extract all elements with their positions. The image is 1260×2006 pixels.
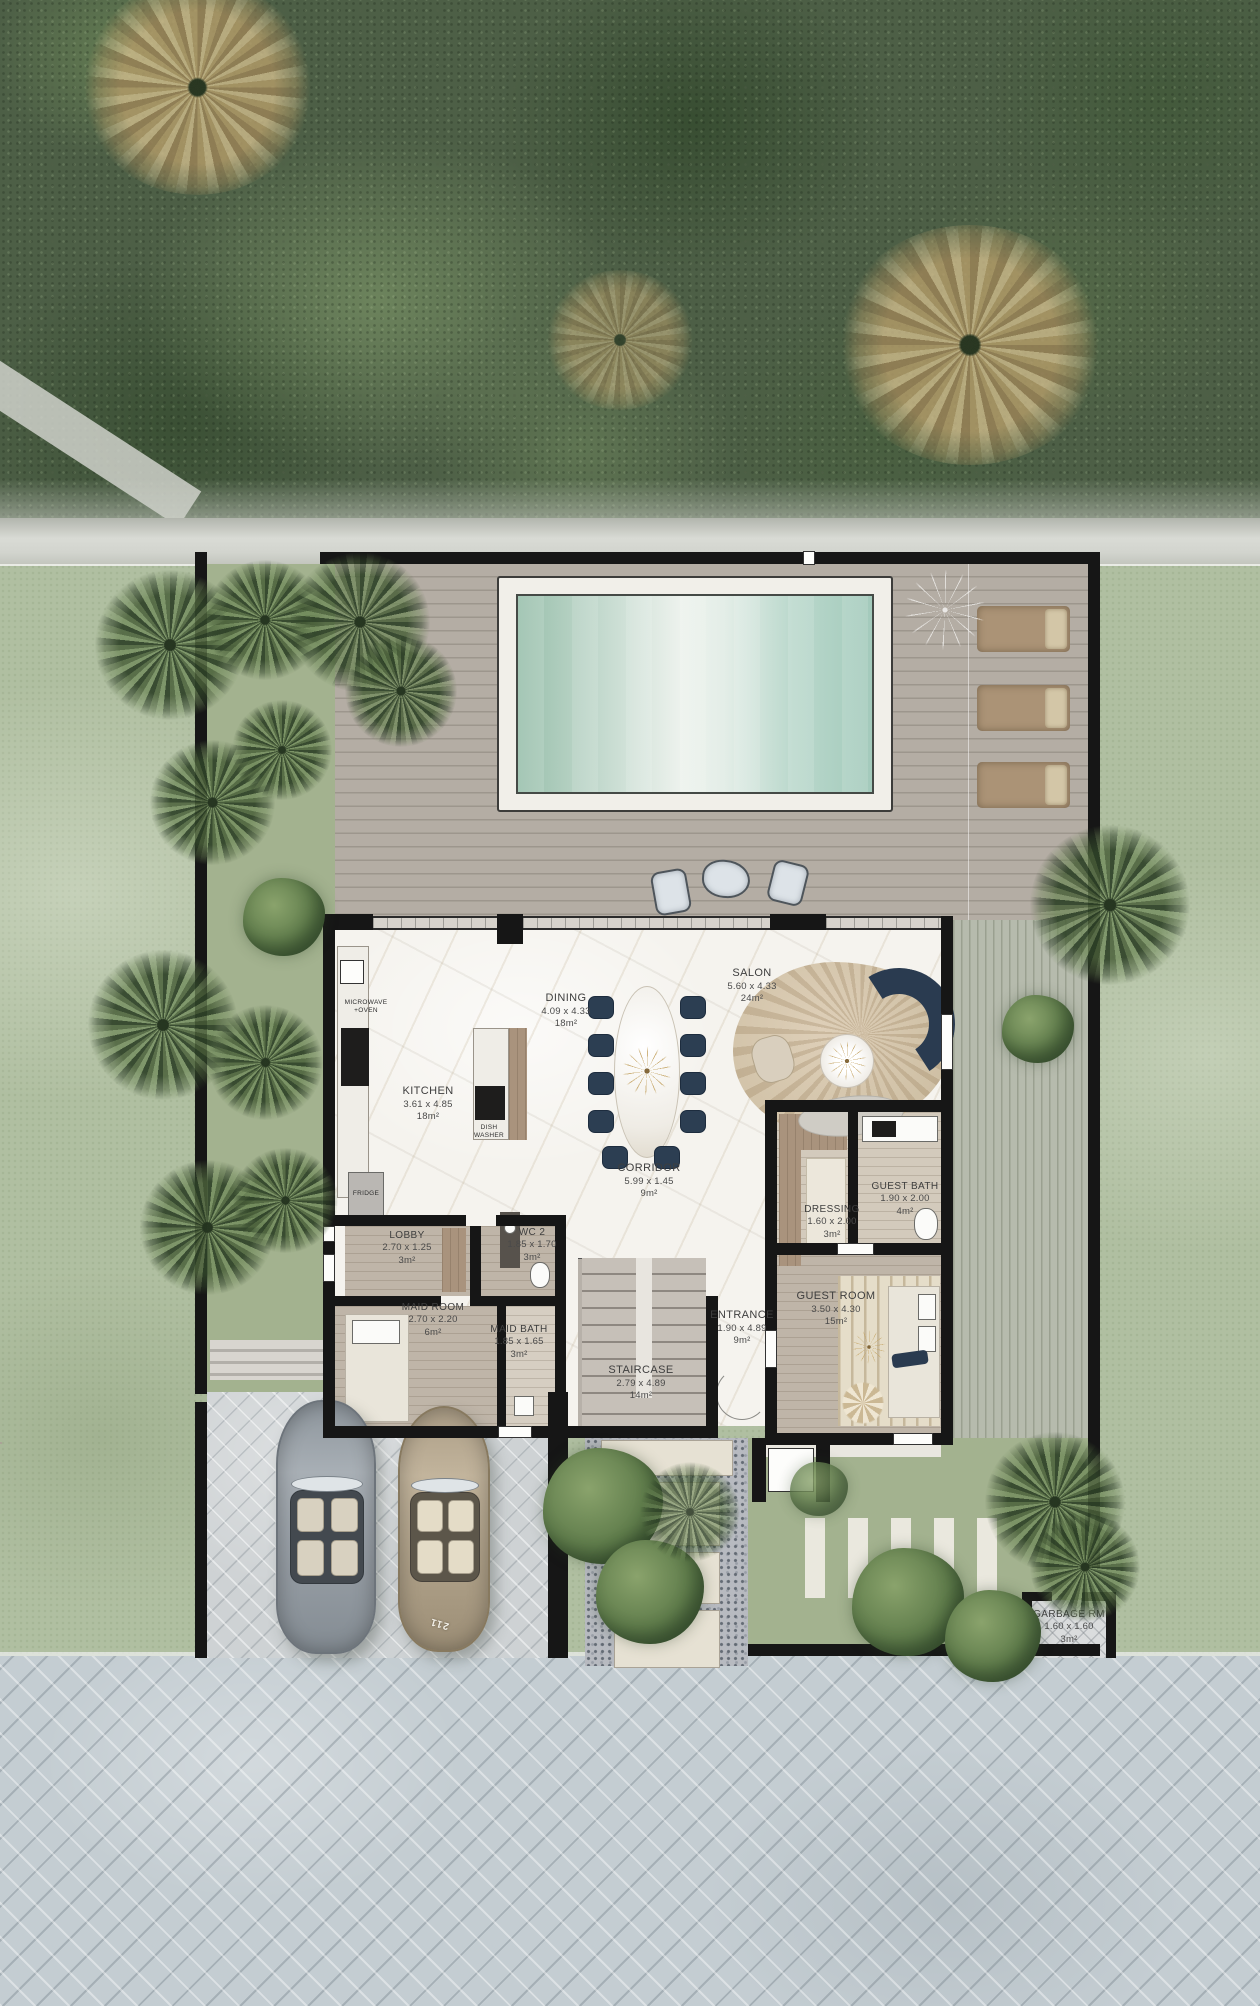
window — [941, 1014, 953, 1070]
label-fridge: FRIDGE — [353, 1190, 379, 1198]
room-label-maid-bath: MAID BATH 1.85 x 1.65 3m² — [490, 1323, 547, 1361]
car-beige: 211 — [398, 1406, 490, 1652]
room-name: MAID BATH — [490, 1323, 547, 1336]
pool — [516, 594, 874, 794]
dining-chair — [680, 1072, 706, 1095]
house-wall — [770, 914, 826, 930]
utility-pad — [210, 1340, 330, 1380]
house-wall — [941, 1112, 953, 1445]
window — [893, 1433, 933, 1445]
room-label-maid-room: MAID ROOM 2.70 x 2.20 6m² — [402, 1301, 465, 1339]
kitchen-window — [373, 916, 497, 930]
room-name: MAID ROOM — [402, 1301, 465, 1314]
boundary-wall — [320, 552, 1100, 564]
room-area: 3m² — [804, 1229, 859, 1242]
pillow — [918, 1294, 936, 1320]
palm-tree-icon — [345, 635, 457, 747]
boundary-wall — [195, 1402, 207, 1658]
dining-chair — [680, 1110, 706, 1133]
room-dims: 1.90 x 2.00 — [872, 1193, 939, 1206]
room-name: GUEST BATH — [872, 1180, 939, 1193]
partition-wall — [874, 1243, 941, 1255]
room-dims: 5.99 x 1.45 — [617, 1176, 680, 1189]
dining-chair — [680, 996, 706, 1019]
label-line: MICROWAVE — [345, 999, 388, 1007]
floor-plan-canvas: 211 DINING 4.09 x 4.33 18m² SALON 5. — [0, 0, 1260, 2006]
deck-chair — [649, 867, 692, 917]
door-swing-arc — [716, 1368, 768, 1420]
room-area: 3m² — [490, 1349, 547, 1362]
room-label-staircase: STAIRCASE 2.79 x 4.89 14m² — [608, 1363, 673, 1403]
room-dims: 2.79 x 4.89 — [608, 1378, 673, 1391]
room-name: CORRIDOR — [617, 1161, 680, 1176]
room-dims: 4.09 x 4.33 — [541, 1006, 590, 1019]
label-microwave: MICROWAVE +OVEN — [345, 999, 388, 1015]
label-line: DISH — [474, 1124, 504, 1132]
dining-chair — [588, 1072, 614, 1095]
palm-tree-icon — [640, 1462, 740, 1562]
cad-guideline — [968, 564, 969, 920]
room-label-dressing: DRESSING 1.60 x 2.00 3m² — [804, 1203, 859, 1241]
room-name: KITCHEN — [402, 1084, 453, 1099]
oven-unit — [341, 1028, 369, 1086]
sun-lounger — [977, 606, 1070, 652]
room-dims: 3.61 x 4.85 — [402, 1099, 453, 1112]
room-label-dining: DINING 4.09 x 4.33 18m² — [541, 991, 590, 1031]
chandelier-icon — [852, 1330, 886, 1364]
room-label-corridor: CORRIDOR 5.99 x 1.45 9m² — [617, 1161, 680, 1201]
sun-lounger — [977, 685, 1070, 731]
partition-wall — [555, 1215, 566, 1426]
room-dims: 1.60 x 2.00 — [804, 1216, 859, 1229]
room-area: 6m² — [402, 1327, 465, 1340]
window — [323, 1254, 335, 1282]
garden-gate — [803, 551, 815, 565]
room-dims: 3.50 x 4.30 — [797, 1304, 876, 1317]
windshield — [411, 1478, 479, 1493]
partition-wall — [765, 1100, 953, 1112]
room-name: ENTRANCE — [710, 1308, 774, 1323]
chandelier-icon — [827, 1041, 867, 1081]
dining-chair — [588, 1034, 614, 1057]
room-name: GUEST ROOM — [797, 1289, 876, 1304]
room-area: 3m² — [507, 1252, 556, 1265]
room-name: SALON — [727, 966, 776, 981]
room-dims: 2.70 x 2.20 — [402, 1314, 465, 1327]
room-area: 3m² — [382, 1255, 431, 1268]
kitchen-sink — [340, 960, 364, 984]
room-area: 24m² — [727, 993, 776, 1006]
 — [0, 1442, 2, 1444]
room-dims: 5.60 x 4.33 — [727, 981, 776, 994]
palm-tree-icon — [835, 225, 1105, 465]
room-label-guest-room: GUEST ROOM 3.50 x 4.30 15m² — [797, 1289, 876, 1329]
car-seat — [297, 1498, 324, 1532]
car-seat — [417, 1540, 443, 1574]
salon-window — [826, 916, 941, 930]
room-label-guest-bath: GUEST BATH 1.90 x 2.00 4m² — [872, 1180, 939, 1218]
door — [837, 1243, 874, 1255]
palm-tree-icon — [233, 1148, 338, 1253]
boundary-wall — [1088, 552, 1100, 1568]
street — [0, 1656, 1260, 2006]
room-label-salon: SALON 5.60 x 4.33 24m² — [727, 966, 776, 1006]
room-dims: 1.85 x 1.65 — [490, 1336, 547, 1349]
room-dims: 1.85 x 1.70 — [507, 1239, 556, 1252]
partition-wall — [765, 1112, 777, 1330]
palm-tree-icon — [1030, 1512, 1140, 1622]
room-area: 9m² — [710, 1335, 774, 1348]
label-line: FRIDGE — [353, 1190, 379, 1197]
room-area: 18m² — [402, 1111, 453, 1124]
room-dims: 1.60 x 1.60 — [1033, 1621, 1105, 1634]
room-area: 14m² — [608, 1390, 673, 1403]
dining-chair — [680, 1034, 706, 1057]
label-line: WASHER — [474, 1132, 504, 1140]
car-seat — [448, 1500, 474, 1532]
label-line: +OVEN — [345, 1007, 388, 1015]
partition-wall — [470, 1226, 481, 1300]
door-frame — [752, 1438, 766, 1502]
round-pouf — [842, 1382, 884, 1424]
car-seat — [417, 1500, 443, 1532]
partition-wall — [335, 1215, 466, 1226]
dining-chair — [588, 996, 614, 1019]
lobby-cabinet — [442, 1228, 466, 1292]
pillow — [918, 1326, 936, 1352]
room-label-lobby: LOBBY 2.70 x 1.25 3m² — [382, 1229, 431, 1267]
room-name: WC 2 — [507, 1226, 556, 1239]
room-name: DINING — [541, 991, 590, 1006]
house-wall — [497, 914, 523, 944]
room-area: 18m² — [541, 1018, 590, 1031]
car-seat — [297, 1540, 324, 1576]
room-label-entrance: ENTRANCE 1.90 x 4.89 9m² — [710, 1308, 774, 1348]
room-area: 9m² — [617, 1188, 680, 1201]
plant-marker-icon — [905, 570, 985, 650]
maid-bath-sink — [514, 1396, 534, 1416]
basin — [872, 1121, 896, 1137]
sun-lounger — [977, 762, 1070, 808]
room-name: DRESSING — [804, 1203, 859, 1216]
dishwasher-unit — [475, 1086, 505, 1120]
car-seat — [331, 1540, 358, 1576]
room-dims: 1.90 x 4.89 — [710, 1323, 774, 1336]
room-name: STAIRCASE — [608, 1363, 673, 1378]
window — [498, 1426, 532, 1438]
pillow — [352, 1320, 400, 1344]
room-dims: 2.70 x 1.25 — [382, 1242, 431, 1255]
room-label-kitchen: KITCHEN 3.61 x 4.85 18m² — [402, 1084, 453, 1124]
kitchen-island-wood-top — [509, 1028, 527, 1140]
toilet — [530, 1262, 550, 1288]
room-area: 4m² — [872, 1206, 939, 1219]
palm-tree-icon — [545, 270, 695, 410]
car-gray — [276, 1400, 376, 1654]
label-dishwasher: DISH WASHER — [474, 1124, 504, 1140]
car-seat — [331, 1498, 358, 1532]
room-area: 3m² — [1033, 1634, 1105, 1647]
sliding-glass-door — [523, 916, 770, 930]
room-label-wc2: WC 2 1.85 x 1.70 3m² — [507, 1226, 556, 1264]
partition-wall — [765, 1368, 777, 1438]
car-seat — [448, 1540, 474, 1574]
palm-tree-icon — [208, 1005, 323, 1120]
room-area: 15m² — [797, 1316, 876, 1329]
room-name: LOBBY — [382, 1229, 431, 1242]
windshield — [291, 1476, 363, 1492]
palm-tree-icon — [232, 700, 332, 800]
partition-wall — [777, 1243, 837, 1255]
partition-wall — [470, 1296, 566, 1306]
palm-tree-icon — [1030, 825, 1190, 985]
dining-chair — [588, 1110, 614, 1133]
chandelier-icon — [622, 1046, 672, 1096]
